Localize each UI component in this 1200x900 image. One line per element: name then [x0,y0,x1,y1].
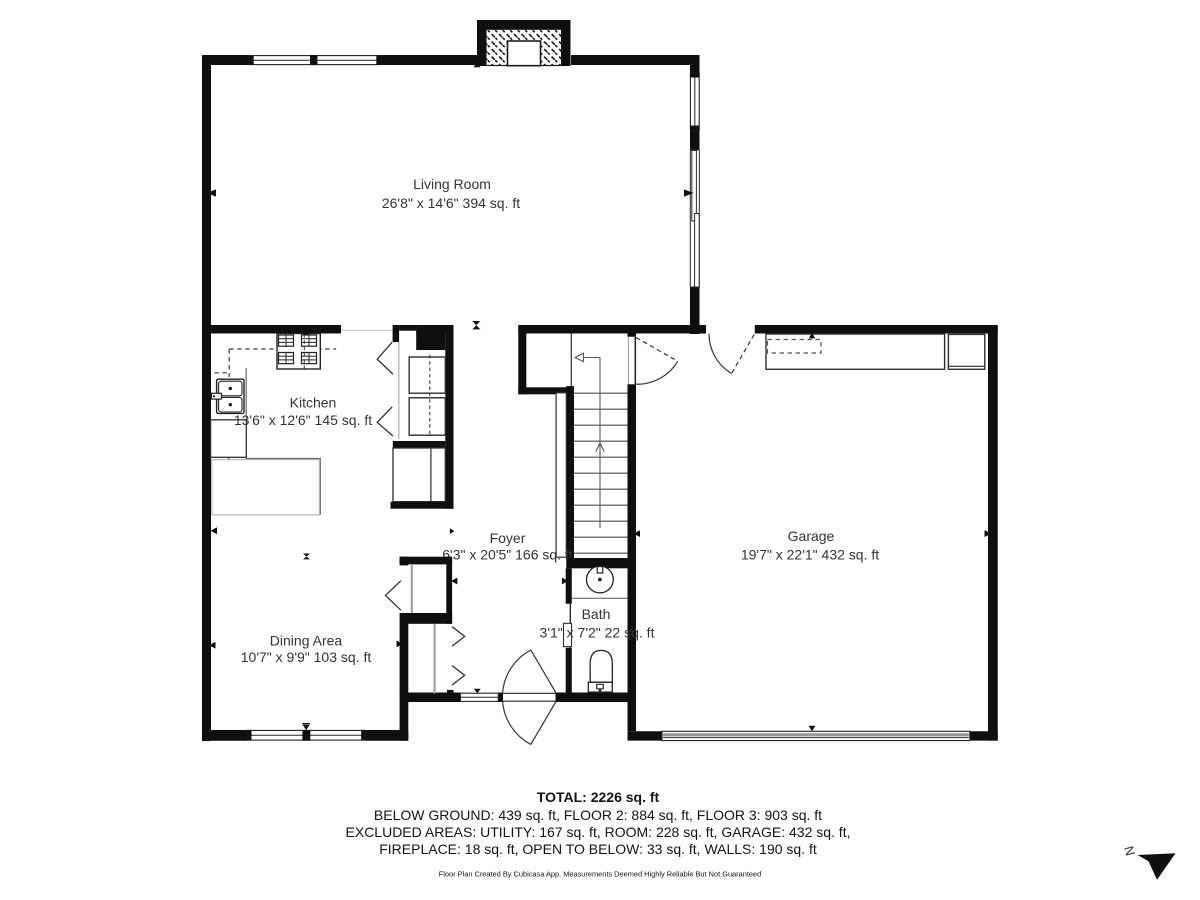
svg-text:Dining Area: Dining Area [270,633,343,649]
svg-text:Kitchen: Kitchen [290,395,337,411]
svg-text:Bath: Bath [582,606,611,622]
svg-text:6'3" x 20'5" 166 sq. ft: 6'3" x 20'5" 166 sq. ft [442,547,573,563]
svg-text:FIREPLACE: 18 sq. ft, OPEN TO: FIREPLACE: 18 sq. ft, OPEN TO BELOW: 33 … [379,841,817,857]
svg-text:19'7" x 22'1" 432 sq. ft: 19'7" x 22'1" 432 sq. ft [741,547,879,563]
svg-text:26'8" x 14'6" 394 sq. ft: 26'8" x 14'6" 394 sq. ft [382,195,520,211]
svg-text:Foyer: Foyer [490,530,526,546]
svg-text:Living Room: Living Room [413,176,491,192]
svg-text:TOTAL: 2226 sq. ft: TOTAL: 2226 sq. ft [537,789,660,805]
svg-text:EXCLUDED AREAS: UTILITY: 167 s: EXCLUDED AREAS: UTILITY: 167 sq. ft, ROO… [346,824,851,840]
svg-text:3'1" x 7'2" 22 sq. ft: 3'1" x 7'2" 22 sq. ft [540,625,655,641]
svg-text:Floor Plan Created By Cubicasa: Floor Plan Created By Cubicasa App. Meas… [439,870,761,879]
svg-text:10'7" x 9'9" 103 sq. ft: 10'7" x 9'9" 103 sq. ft [241,649,372,665]
svg-text:Garage: Garage [788,528,835,544]
svg-text:13'6" x 12'6" 145 sq. ft: 13'6" x 12'6" 145 sq. ft [234,412,372,428]
svg-text:BELOW GROUND: 439 sq. ft, FLOO: BELOW GROUND: 439 sq. ft, FLOOR 2: 884 s… [374,807,822,823]
